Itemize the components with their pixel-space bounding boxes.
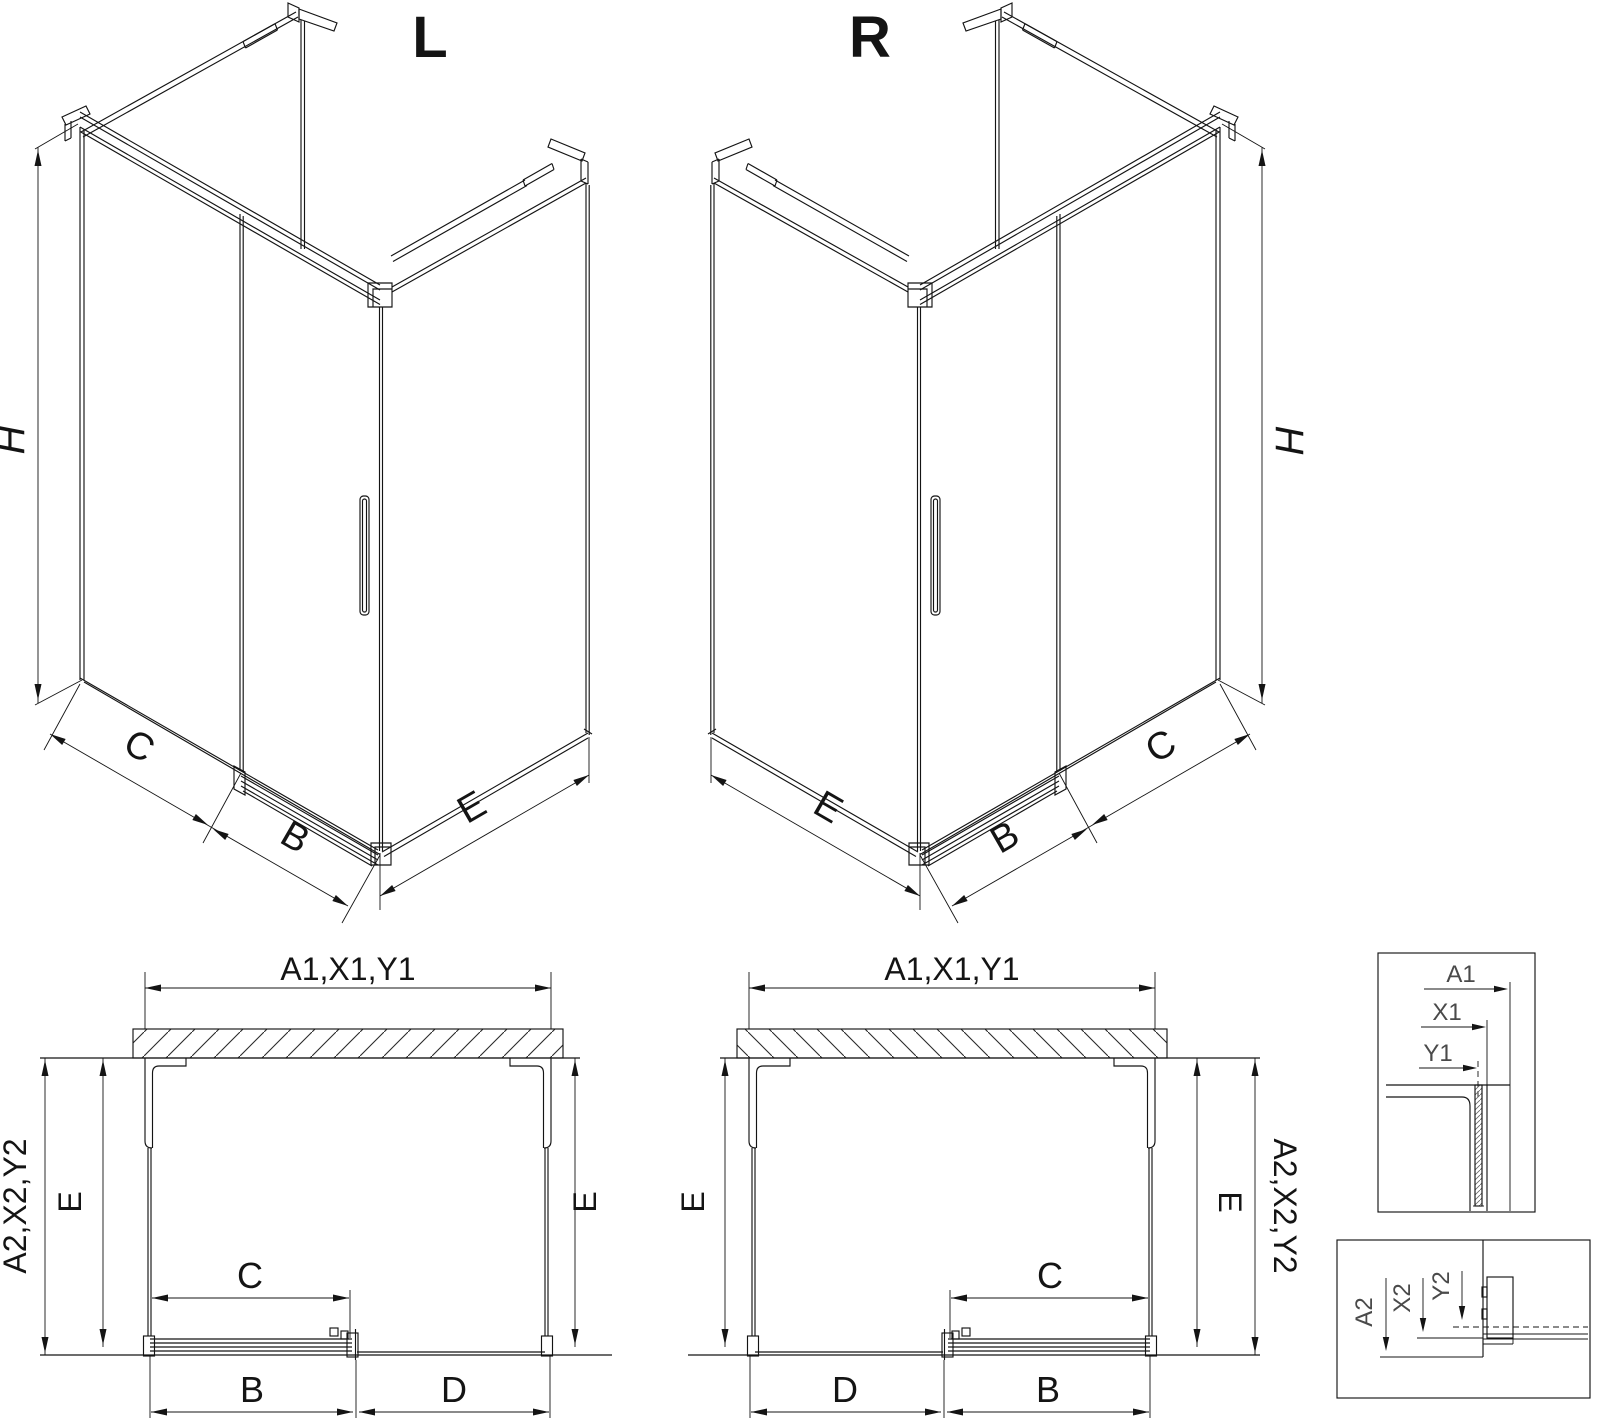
plan-left-e-right-dim: E [567, 1191, 603, 1212]
iso-left-e-dim: E [451, 783, 494, 832]
technical-drawing-page: L H C B E R H C B E A1,X1,Y1 A2,X2,Y2 E … [0, 0, 1600, 1423]
iso-left-c-dim: C [117, 722, 162, 772]
plan-left-c-dim: C [237, 1255, 263, 1296]
iso-right-title: R [849, 5, 891, 70]
iso-right-e-dim: E [807, 783, 850, 832]
plan-right-d-dim: D [832, 1369, 858, 1410]
detail-top-box [1378, 953, 1535, 1212]
detail-bottom-x2-label: X2 [1389, 1283, 1416, 1312]
iso-right-geometry [708, 3, 1266, 923]
iso-left-height-dim: H [0, 425, 33, 454]
plan-left-d-dim: D [441, 1369, 467, 1410]
iso-right-c-dim: C [1139, 722, 1184, 772]
shower-enclosure-drawing: L H C B E R H C B E A1,X1,Y1 A2,X2,Y2 E … [0, 0, 1600, 1423]
iso-right-height-dim: H [1267, 426, 1311, 455]
plan-right-geometry [688, 972, 1260, 1418]
plan-left-b-dim: B [240, 1369, 264, 1410]
plan-left-top-dim: A1,X1,Y1 [280, 951, 415, 987]
detail-bottom-y2-label: Y2 [1428, 1271, 1455, 1300]
iso-left-geometry [35, 3, 593, 923]
glass-section-hatch [1475, 1085, 1482, 1206]
plan-right-outer-depth-dim: A2,X2,Y2 [1267, 1138, 1303, 1273]
detail-top-a1-label: A1 [1446, 961, 1475, 988]
plan-right-e-left-dim: E [675, 1191, 711, 1212]
detail-top-y1-label: Y1 [1423, 1040, 1452, 1067]
detail-bottom-a2-label: A2 [1351, 1297, 1378, 1326]
iso-left-title: L [412, 5, 447, 70]
plan-left-outer-depth-dim: A2,X2,Y2 [0, 1138, 33, 1273]
plan-left-geometry [40, 972, 612, 1418]
plan-right-top-dim: A1,X1,Y1 [884, 951, 1019, 987]
plan-right-c-dim: C [1037, 1255, 1063, 1296]
plan-left-e-left-dim: E [52, 1191, 88, 1212]
detail-top-x1-label: X1 [1432, 999, 1461, 1026]
plan-right-e-right-dim: E [1212, 1191, 1248, 1212]
plan-right-b-dim: B [1036, 1369, 1060, 1410]
